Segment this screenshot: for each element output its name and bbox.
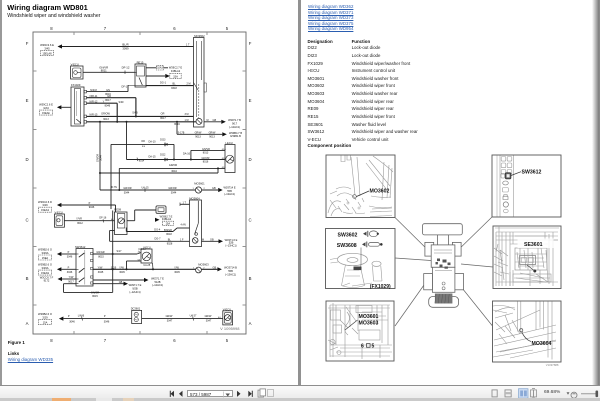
svg-text:2 M: 2 M [187, 83, 191, 86]
svg-text:55B: 55B [227, 189, 232, 193]
svg-text:W39B2.6 O: W39B2.6 O [38, 263, 52, 267]
svg-text:8018: 8018 [166, 233, 172, 236]
svg-text:317N: 317N [111, 186, 117, 189]
svg-text:6: 6 [173, 338, 176, 343]
svg-text:8012: 8012 [77, 222, 83, 225]
svg-text:UA-15: UA-15 [141, 187, 149, 190]
svg-text:A: A [26, 321, 29, 326]
svg-text:DG-1: DG-1 [160, 81, 167, 84]
svg-text:P: P [68, 251, 70, 254]
svg-text:8014: 8014 [139, 160, 145, 163]
svg-text:3045: 3045 [98, 271, 104, 274]
svg-text:1 F: 1 F [180, 238, 184, 241]
svg-text:MO3603: MO3603 [359, 321, 379, 327]
svg-text:15A: 15A [43, 320, 48, 324]
svg-text:UA-25: UA-25 [143, 264, 150, 267]
svg-text:V1097888: V1097888 [546, 363, 559, 367]
svg-text:W3971.7 B: W3971.7 B [228, 118, 241, 122]
svg-text:SW3608: SW3608 [337, 243, 357, 249]
svg-text:GN/VR: GN/VR [202, 157, 210, 160]
svg-text:WO3714 B: WO3714 B [224, 266, 237, 270]
svg-text:SW3602: SW3602 [338, 232, 358, 238]
svg-text:9013: 9013 [209, 136, 215, 139]
svg-text:BN/GR: BN/GR [164, 229, 172, 232]
svg-text:3099: 3099 [122, 47, 129, 51]
svg-text:15EAb: 15EAb [42, 111, 50, 115]
svg-text:GN/GR: GN/GR [91, 292, 99, 295]
svg-text:Y/W: Y/W [174, 266, 179, 269]
svg-text:GR/OW: GR/OW [101, 112, 110, 115]
svg-text:DA-16: DA-16 [183, 152, 191, 155]
svg-text:W39B4.7 B: W39B4.7 B [229, 131, 242, 135]
svg-text:(~13HC1): (~13HC1) [225, 243, 236, 247]
svg-text:M: M [202, 238, 204, 241]
svg-text:LIN-B: LIN-B [78, 314, 85, 317]
svg-text:1 T: 1 T [183, 202, 187, 205]
svg-text:7: 7 [104, 338, 107, 343]
svg-text:9 B: 9 B [142, 146, 146, 148]
svg-text:DG-7: DG-7 [155, 237, 162, 240]
svg-text:GN/GR: GN/GR [96, 251, 104, 254]
svg-text:3/29A: 3/29A [41, 251, 48, 255]
svg-text:3044: 3044 [100, 155, 103, 161]
svg-text:1 M: 1 M [185, 119, 189, 122]
svg-text:5: 5 [226, 338, 229, 343]
svg-text:GN: GN [106, 89, 110, 92]
svg-text:DF-16: DF-16 [99, 216, 107, 219]
svg-text:DC3601: DC3601 [131, 306, 141, 310]
svg-text:5: 5 [372, 344, 375, 350]
svg-text:C: C [248, 218, 251, 223]
svg-text:8: 8 [50, 26, 53, 31]
svg-text:MO3601: MO3601 [194, 181, 205, 185]
svg-text:N/R-12: N/R-12 [90, 100, 99, 103]
svg-text:1 T: 1 T [186, 44, 190, 47]
svg-text:3/A3: 3/A3 [43, 106, 49, 110]
svg-text:SE3601: SE3601 [524, 242, 543, 248]
svg-text:MO3603: MO3603 [198, 262, 209, 266]
svg-text:N/R-11: N/R-11 [90, 95, 98, 98]
svg-text:8015: 8015 [98, 255, 104, 258]
svg-text:15A: 15A [165, 222, 170, 226]
svg-text:GB: GB [213, 119, 217, 122]
svg-text:GR/W: GR/W [166, 315, 173, 318]
svg-text:W0371.7 E: W0371.7 E [151, 276, 164, 280]
svg-text:GR/OR: GR/OR [168, 187, 176, 190]
svg-text:RE09: RE09 [114, 208, 121, 212]
svg-text:15EA9: 15EA9 [41, 271, 49, 275]
svg-text:W39C2.7 E: W39C2.7 E [169, 66, 183, 70]
svg-text:GR/W: GR/W [195, 131, 202, 134]
svg-text:512B: 512B [154, 280, 160, 284]
svg-text:W03714 E: W03714 E [223, 185, 235, 189]
svg-text:DI23: DI23 [160, 139, 166, 142]
svg-text:SW3612: SW3612 [522, 169, 542, 175]
svg-text:55B: 55B [228, 269, 233, 273]
svg-text:3046: 3046 [69, 321, 75, 324]
svg-text:F4BLA2: F4BLA2 [171, 69, 181, 73]
svg-text:3/29A: 3/29A [41, 266, 48, 270]
svg-text:W39B2.6 O: W39B2.6 O [38, 248, 52, 252]
svg-text:9028: 9028 [167, 242, 173, 245]
svg-text:61A: 61A [222, 148, 226, 151]
svg-text:311B: 311B [111, 266, 117, 269]
svg-text:DA-15: DA-15 [148, 155, 156, 158]
svg-text:B: B [249, 276, 252, 281]
svg-text:3046: 3046 [67, 271, 73, 274]
svg-text:8016: 8016 [203, 161, 209, 164]
svg-text:UA 57: UA 57 [190, 314, 197, 317]
svg-text:C: C [25, 218, 28, 223]
svg-text:15EA3: 15EA3 [41, 208, 49, 212]
svg-text:8318: 8318 [171, 87, 177, 90]
svg-text:OR: OR [141, 140, 145, 143]
svg-text:MO3604: MO3604 [532, 341, 552, 347]
svg-text:DF-12: DF-12 [122, 65, 130, 69]
svg-text:9/17: 9/17 [232, 121, 238, 125]
svg-text:S/17: S/17 [117, 250, 123, 253]
svg-text:GB: GB [213, 266, 217, 269]
svg-text:OR: OR [161, 113, 165, 116]
svg-text:F: F [249, 41, 252, 46]
svg-text:N/R-15: N/R-15 [90, 114, 99, 117]
svg-text:D: D [25, 157, 28, 162]
svg-text:GR/OR: GR/OR [169, 164, 177, 167]
svg-text:5: 5 [226, 26, 229, 31]
svg-text:9013: 9013 [195, 136, 201, 139]
svg-text:3/45: 3/45 [44, 47, 50, 51]
svg-text:(FX1029): (FX1029) [370, 284, 391, 290]
svg-text:E: E [26, 98, 29, 103]
svg-text:GB: GB [212, 187, 216, 190]
svg-text:D: D [248, 157, 251, 162]
svg-text:6: 6 [361, 344, 364, 350]
svg-text:B: B [26, 276, 29, 281]
svg-text:E: E [249, 98, 252, 103]
svg-text:3/29: 3/29 [42, 203, 48, 207]
svg-text:(~12HC1): (~12HC1) [152, 283, 163, 287]
svg-text:S-17B: S-17B [178, 131, 185, 134]
svg-text:3046: 3046 [104, 321, 110, 324]
svg-text:N/R-8: N/R-8 [90, 89, 97, 92]
svg-text:MO3601: MO3601 [359, 314, 379, 320]
svg-text:F: F [26, 41, 29, 46]
svg-text:P: P [68, 315, 70, 318]
svg-text:W39C2.6 D: W39C2.6 D [38, 200, 52, 204]
svg-text:W39C2.6 E: W39C2.6 E [39, 103, 53, 107]
svg-text:GB: GB [119, 281, 123, 284]
svg-text:(~13HC1): (~13HC1) [225, 273, 236, 277]
svg-text:DF-17: DF-17 [122, 86, 130, 89]
svg-text:V 1095998: V 1095998 [220, 326, 240, 331]
svg-text:GR/W: GR/W [209, 131, 216, 134]
svg-text:Y/W: Y/W [98, 266, 103, 269]
svg-text:15ELA8: 15ELA8 [42, 51, 52, 55]
svg-text:GB: GB [210, 238, 214, 241]
svg-text:3046: 3046 [67, 255, 73, 258]
svg-text:3044: 3044 [171, 191, 177, 194]
svg-text:3047: 3047 [167, 319, 173, 322]
svg-text:W3CC6.7 F: W3CC6.7 F [40, 275, 54, 279]
svg-text:3045: 3045 [174, 271, 180, 274]
svg-text:9046: 9046 [89, 206, 95, 209]
svg-text:F4BLA2: F4BLA2 [162, 217, 172, 221]
svg-text:8: 8 [50, 338, 53, 343]
svg-text:P: P [89, 202, 91, 205]
svg-text:8017: 8017 [105, 99, 111, 102]
svg-text:M: M [207, 119, 209, 122]
svg-text:6: 6 [173, 26, 176, 31]
svg-text:(~13HC1): (~13HC1) [224, 192, 235, 196]
svg-text:W3971.7 E: W3971.7 E [129, 283, 142, 287]
svg-text:3/29: 3/29 [42, 316, 48, 320]
svg-text:8017: 8017 [160, 117, 166, 120]
svg-text:MO3602: MO3602 [370, 189, 390, 195]
svg-text:Y/VR: Y/VR [76, 218, 82, 221]
svg-text:3044: 3044 [124, 192, 130, 195]
svg-text:GR: GR [107, 95, 111, 98]
svg-text:15EA: 15EA [42, 256, 49, 260]
svg-text:9/2B: 9/2B [132, 286, 138, 290]
svg-text:FX1029: FX1029 [71, 83, 81, 87]
svg-text:9172: 9172 [44, 279, 50, 283]
svg-text:4 AN: 4 AN [181, 224, 186, 227]
svg-text:9017: 9017 [68, 280, 74, 283]
svg-text:W39B2.6 O: W39B2.6 O [38, 312, 52, 316]
svg-text:GR/OR: GR/OR [123, 187, 131, 190]
svg-text:8046: 8046 [105, 105, 111, 108]
svg-text:9/39B1.B: 9/39B1.B [230, 134, 241, 138]
svg-text:W39C3.6 E: W39C3.6 E [40, 43, 54, 47]
svg-text:8011: 8011 [101, 69, 107, 73]
svg-text:Y/W: Y/W [69, 276, 74, 279]
svg-text:15A: 15A [173, 74, 178, 78]
svg-text:8013: 8013 [203, 151, 209, 154]
svg-text:10A3: 10A3 [157, 67, 163, 70]
svg-text:S/4B: S/4B [132, 111, 138, 114]
svg-text:8015: 8015 [92, 295, 98, 298]
svg-text:DI22: DI22 [160, 154, 166, 157]
svg-text:P: P [104, 315, 106, 318]
svg-text:Y/W: Y/W [119, 266, 124, 269]
svg-text:3 M: 3 M [185, 113, 189, 116]
svg-text:9013: 9013 [103, 118, 109, 121]
svg-text:GR/W: GR/W [205, 315, 212, 318]
svg-text:7: 7 [104, 26, 107, 31]
svg-text:(~12HC1): (~12HC1) [129, 290, 140, 294]
svg-text:3047: 3047 [206, 319, 212, 322]
svg-text:(~12HC1): (~12HC1) [229, 125, 240, 129]
svg-text:A: A [249, 321, 252, 326]
svg-text:3045: 3045 [119, 271, 125, 274]
svg-text:DA-10: DA-10 [148, 140, 156, 143]
svg-text:S/4F: S/4F [119, 101, 125, 104]
